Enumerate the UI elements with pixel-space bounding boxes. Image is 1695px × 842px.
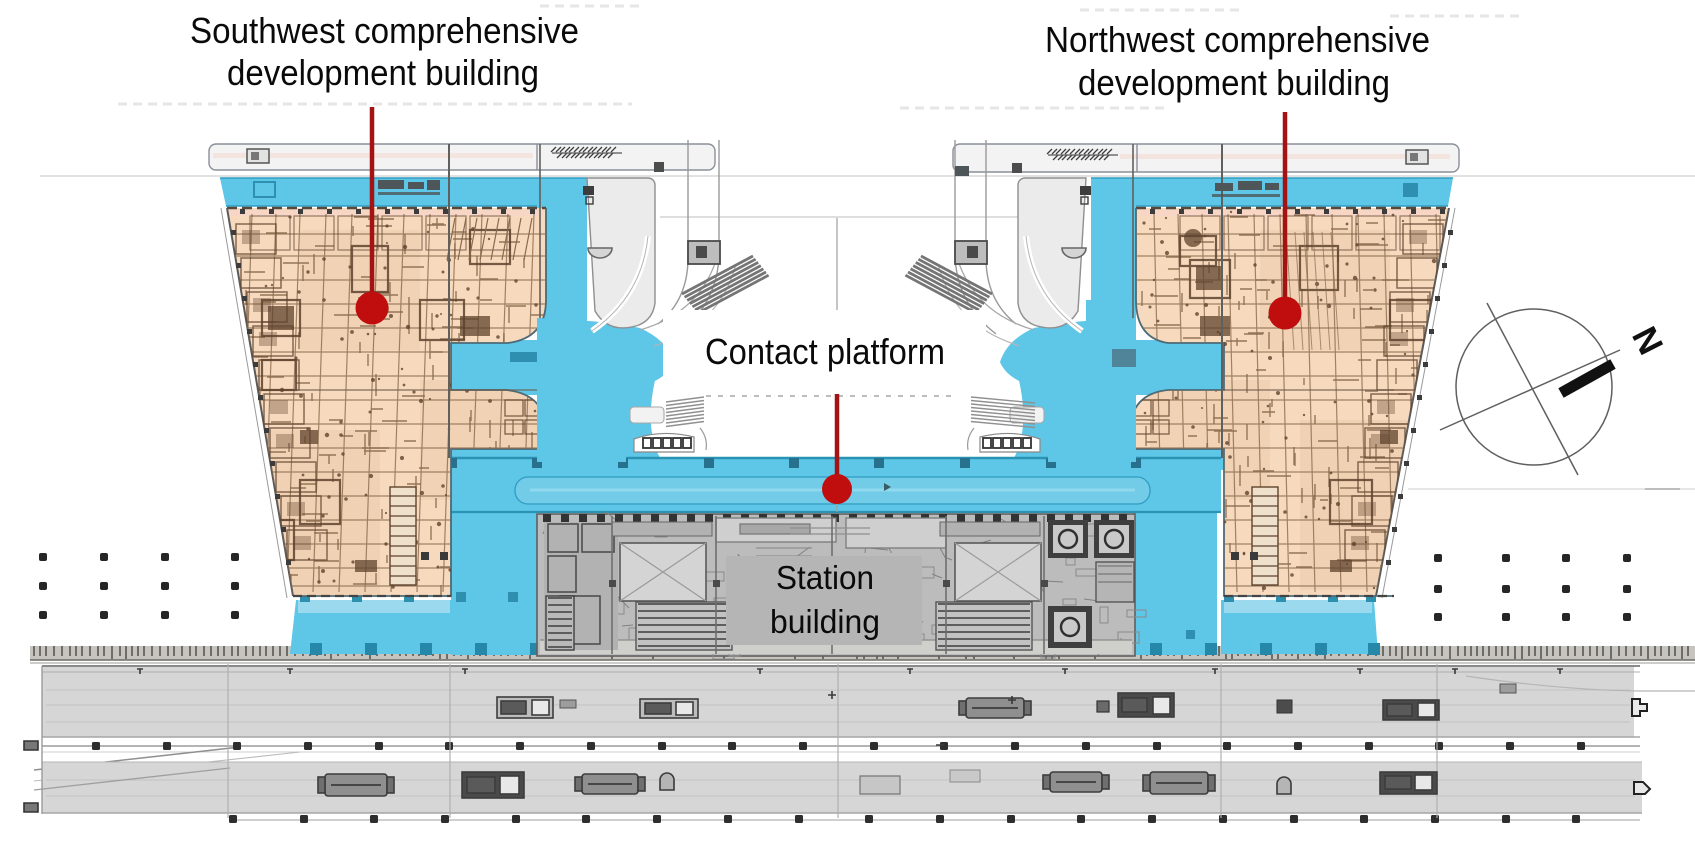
svg-text:development building: development building — [1078, 62, 1390, 103]
svg-text:Contact platform: Contact platform — [705, 331, 945, 372]
svg-text:development building: development building — [227, 52, 539, 93]
svg-text:Northwest comprehensive: Northwest comprehensive — [1045, 19, 1430, 60]
svg-text:Southwest comprehensive: Southwest comprehensive — [190, 10, 579, 51]
svg-text:building: building — [770, 603, 880, 640]
svg-text:Station: Station — [776, 559, 874, 596]
